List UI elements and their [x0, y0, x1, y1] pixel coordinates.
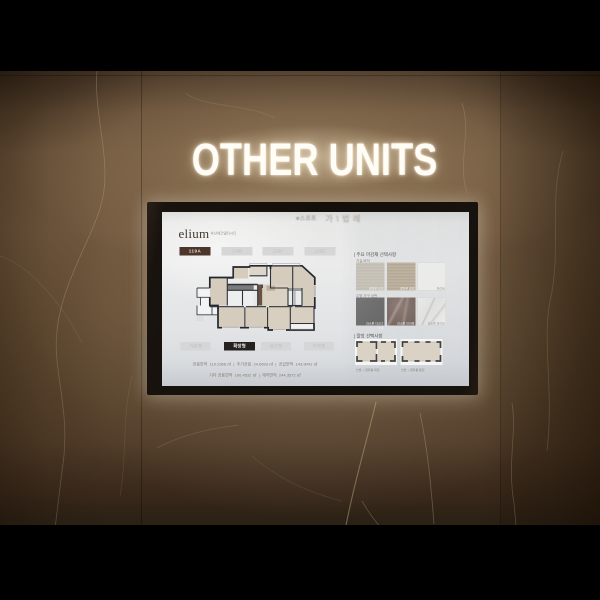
svg-text:elium: elium: [196, 313, 204, 323]
